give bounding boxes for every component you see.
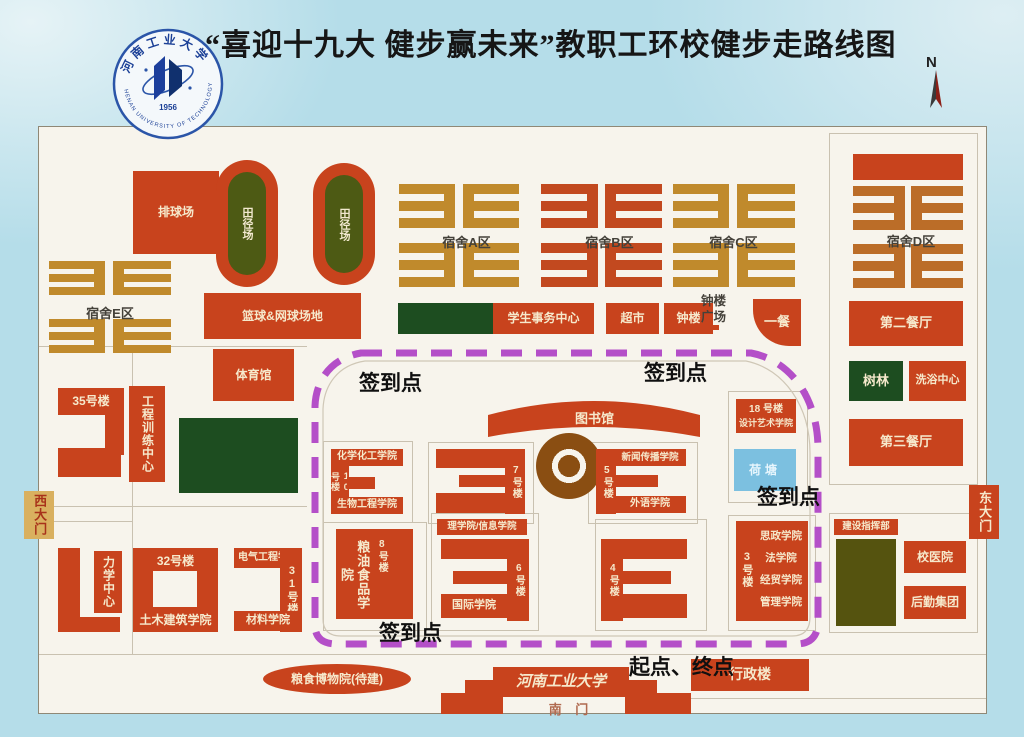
building-green-block bbox=[398, 303, 493, 334]
east-gate: 东大门 bbox=[969, 485, 999, 539]
building-5: 5号楼 bbox=[596, 449, 616, 514]
building-6-wing bbox=[453, 571, 509, 584]
dorm-building bbox=[49, 261, 105, 295]
building-label: 生物工程学院 bbox=[337, 499, 397, 512]
building-logistics-group: 后勤集团 bbox=[904, 586, 966, 619]
pond-label: 荷塘 bbox=[749, 463, 781, 478]
building-label: 外语学院 bbox=[630, 498, 670, 511]
building-7-wing bbox=[436, 493, 506, 513]
building-label: 7号楼 bbox=[509, 465, 522, 499]
plaza-mark bbox=[712, 325, 719, 330]
road-line bbox=[39, 654, 986, 655]
main-gate-label: 河南工业大学 bbox=[516, 673, 606, 692]
building-student-affairs-center: 学生事务中心 bbox=[493, 303, 594, 334]
building-7: 7号楼 bbox=[505, 449, 525, 514]
construction-hq-label-box: 建设指挥部 bbox=[834, 519, 898, 535]
building-mechanics-center: 力学中心 bbox=[94, 551, 122, 613]
building-supermarket: 超市 bbox=[606, 303, 659, 334]
building-7-wing bbox=[436, 449, 506, 468]
building-engineering-training-center: 工程训练中心 bbox=[129, 386, 165, 482]
compass-north-label: N bbox=[926, 54, 937, 71]
building-label: 材料学院 bbox=[246, 614, 290, 628]
building-mechanics-l bbox=[58, 617, 120, 632]
south-gate-label: 南 门 bbox=[535, 699, 607, 718]
building-label: 力学中心 bbox=[101, 556, 116, 608]
dorm-building bbox=[853, 244, 905, 288]
building-label: 学生事务中心 bbox=[507, 311, 579, 326]
building-school-hospital: 校医院 bbox=[904, 541, 966, 573]
building-label: 4号楼 bbox=[606, 563, 619, 597]
building-international-college: 国际学院 bbox=[441, 594, 507, 618]
college-label: 法学院 bbox=[755, 547, 807, 569]
building-journalism-college: 新闻传播学院 bbox=[614, 449, 686, 466]
athletics-track: 田径场 bbox=[216, 160, 278, 287]
building-label: 钟楼 bbox=[676, 311, 700, 326]
building-32-courtyard bbox=[153, 571, 197, 607]
checkpoint-label-4: 签到点 bbox=[379, 617, 442, 647]
building-4-wing bbox=[623, 594, 687, 618]
building-label: 理学院/信息学院 bbox=[447, 521, 516, 533]
checkpoint-label-1: 签到点 bbox=[359, 367, 422, 397]
building-3-colleges: 思政学院 法学院 经贸学院 管理学院 bbox=[755, 525, 807, 613]
building-label: 体育馆 bbox=[235, 368, 271, 383]
dorm-zone-e-label: 宿舍E区 bbox=[75, 303, 145, 322]
dorm-zone-d-label: 宿舍D区 bbox=[871, 231, 951, 250]
main-gate: 河南工业大学 bbox=[493, 667, 629, 697]
dorm-zone-a-label: 宿舍A区 bbox=[424, 232, 509, 251]
building-6: 6号楼 bbox=[507, 539, 529, 621]
building-gymnasium: 体育馆 bbox=[213, 349, 294, 401]
poster: “喜迎十九大 健步赢未来”教职工环校健步走路线图 河南工业大学 HENAN UN… bbox=[0, 0, 1024, 737]
main-gate-wing bbox=[625, 693, 691, 714]
building-label: 田径场 bbox=[325, 175, 363, 273]
building-label: 超市 bbox=[620, 311, 644, 326]
building-label: 洗浴中心 bbox=[916, 374, 960, 388]
building-4: 4号楼 bbox=[601, 539, 623, 621]
building-18-design-college: 18 号楼 设计艺术学院 bbox=[736, 399, 796, 433]
building-foreign-languages-college: 外语学院 bbox=[614, 496, 686, 513]
building-label: 第二餐厅 bbox=[880, 315, 932, 331]
west-gate: 西大门 bbox=[24, 491, 54, 539]
college-label: 思政学院 bbox=[755, 525, 807, 547]
central-plaza-fountain bbox=[536, 433, 602, 499]
dorm-building bbox=[737, 184, 795, 228]
page-title: “喜迎十九大 健步赢未来”教职工环校健步走路线图 bbox=[205, 20, 897, 64]
building-label: 建设指挥部 bbox=[842, 521, 890, 533]
building-32-label: 32号楼 bbox=[133, 552, 218, 569]
building-chemistry-college: 化学化工学院 bbox=[331, 449, 403, 466]
dorm-building bbox=[911, 186, 963, 230]
woods-label: 树林 bbox=[863, 373, 889, 389]
building-science-info-college: 理学院/信息学院 bbox=[437, 519, 527, 535]
svg-text:1956: 1956 bbox=[159, 103, 177, 112]
building-4-wing bbox=[623, 571, 671, 584]
dorm-building bbox=[49, 319, 105, 353]
dorm-building bbox=[673, 184, 729, 228]
gate-label: 西大门 bbox=[31, 494, 47, 536]
building-label: 校医院 bbox=[917, 550, 953, 565]
start-end-label: 起点、终点 bbox=[629, 651, 734, 681]
construction-hq-block bbox=[836, 539, 896, 626]
building-label: 35号楼 bbox=[72, 394, 109, 409]
building-6-wing bbox=[441, 539, 507, 559]
road-line bbox=[39, 506, 307, 507]
building-label: 篮球&网球场地 bbox=[242, 309, 323, 324]
civil-engineering-label: 土木建筑学院 bbox=[131, 611, 220, 628]
road-line bbox=[653, 698, 986, 699]
building-3-label: 3号楼 bbox=[738, 541, 754, 597]
building-label: 5号楼 bbox=[600, 465, 613, 499]
campus-map: 排球场 田径场 田径场 篮球&网球场地 体育馆 宿舍E区 宿舍A区 宿舍B区 宿… bbox=[38, 126, 987, 714]
dorm-building bbox=[399, 184, 455, 228]
building-5-wing bbox=[616, 475, 658, 487]
building-dining-hall-1: 一餐 bbox=[753, 299, 801, 346]
grain-museum-ellipse: 粮食博物院(待建) bbox=[263, 664, 411, 694]
woods: 树林 bbox=[849, 361, 903, 401]
building-label: 粮食博物院(待建) bbox=[291, 672, 383, 687]
building-dining-hall-2: 第二餐厅 bbox=[849, 301, 963, 346]
building-basketball-tennis-courts: 篮球&网球场地 bbox=[204, 293, 361, 339]
checkpoint-label-3: 签到点 bbox=[757, 481, 820, 511]
building-8-label: 8号楼 bbox=[373, 533, 389, 579]
building-label: 行政楼 bbox=[729, 666, 771, 684]
college-label: 经贸学院 bbox=[755, 569, 807, 591]
building-label: 第三餐厅 bbox=[880, 434, 932, 450]
dorm-zone-c-label: 宿舍C区 bbox=[691, 232, 776, 251]
clock-tower-plaza-label: 钟楼广场 bbox=[701, 293, 735, 326]
dorm-building bbox=[605, 184, 662, 228]
building-label: 化学化工学院 bbox=[337, 451, 397, 464]
library-label: 图书馆 bbox=[488, 408, 701, 427]
dorm-building bbox=[541, 184, 598, 228]
building-35-wing bbox=[58, 448, 121, 477]
building-dining-hall-3: 第三餐厅 bbox=[849, 419, 963, 466]
building-label: 新闻传播学院 bbox=[621, 452, 678, 464]
dorm-d-bar bbox=[853, 154, 963, 180]
building-volleyball-court: 排球场 bbox=[133, 171, 219, 254]
building-4-wing bbox=[623, 539, 687, 559]
dorm-building bbox=[113, 319, 171, 353]
building-bath-center: 洗浴中心 bbox=[909, 361, 966, 401]
building-wing bbox=[347, 477, 375, 489]
building-label: 设计艺术学院 bbox=[739, 417, 793, 431]
building-green-block bbox=[179, 418, 298, 493]
university-logo-icon: 河南工业大学 HENAN UNIVERSITY OF TECHNOLOGY 19… bbox=[110, 26, 226, 142]
dorm-building bbox=[911, 244, 963, 288]
building-materials-college: 材料学院 bbox=[234, 611, 302, 631]
building-label: 排球场 bbox=[158, 205, 194, 220]
gate-label: 东大门 bbox=[976, 491, 992, 533]
athletics-track: 田径场 bbox=[313, 163, 375, 285]
checkpoint-label-2: 签到点 bbox=[644, 357, 707, 387]
dorm-zone-b-label: 宿舍B区 bbox=[567, 232, 652, 251]
building-7-wing bbox=[459, 475, 507, 487]
dorm-building bbox=[113, 261, 171, 295]
building-label: 国际学院 bbox=[452, 599, 496, 613]
building-label: 31号楼 bbox=[284, 565, 298, 615]
dorm-building bbox=[853, 186, 905, 230]
dorm-building bbox=[463, 184, 519, 228]
building-label: 田径场 bbox=[228, 172, 266, 275]
building-bioengineering-college: 生物工程学院 bbox=[331, 497, 403, 514]
building-label: 6号楼 bbox=[512, 563, 525, 597]
building-label: 工程训练中心 bbox=[140, 395, 155, 473]
college-label: 管理学院 bbox=[755, 591, 807, 613]
compass-needle-icon bbox=[927, 70, 945, 110]
building-label: 一餐 bbox=[764, 314, 790, 330]
grain-food-college-label: 粮油食品学院 bbox=[342, 535, 366, 615]
building-label: 后勤集团 bbox=[911, 595, 959, 610]
building-label: 18 号楼 bbox=[749, 402, 783, 417]
